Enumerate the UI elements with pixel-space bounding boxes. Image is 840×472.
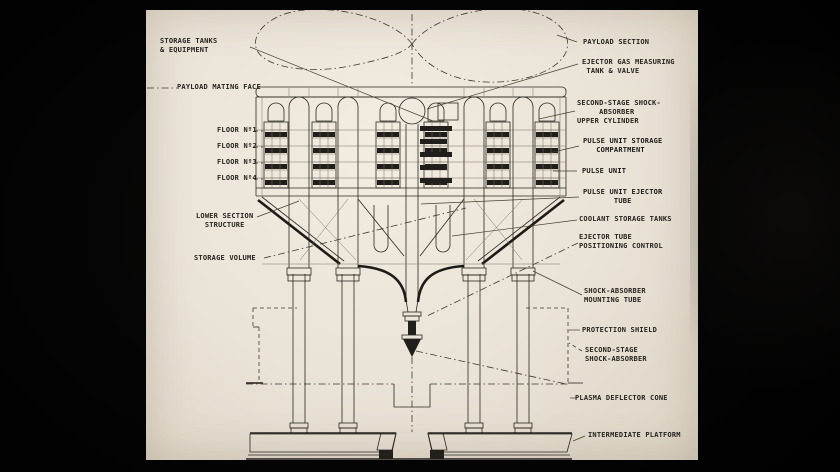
label-floor-4: FLOOR Nº4 [217,174,257,183]
leader-lines [147,35,585,441]
label-storage-tanks-equipment: STORAGE TANKS & EQUIPMENT [160,37,217,55]
label-floor-3: FLOOR Nº3 [217,158,257,167]
photo-viewer-background: STORAGE TANKS & EQUIPMENT PAYLOAD MATING… [0,0,840,472]
label-second-stage-shock-upper: SECOND-STAGE SHOCK- ABSORBER UPPER CYLIN… [577,99,661,126]
label-second-stage-shock-absorber: SECOND-STAGE SHOCK-ABSORBER [585,346,647,364]
label-ejector-tube-positioning: EJECTOR TUBE POSITIONING CONTROL [579,233,663,251]
label-pulse-unit: PULSE UNIT [582,167,626,176]
label-plasma-deflector-cone: PLASMA DEFLECTOR CONE [575,394,668,403]
intermediate-platform [246,433,572,459]
pulse-unit-storage-racks [264,103,559,188]
label-floor-1: FLOOR Nº1 [217,126,257,135]
label-shock-absorber-mounting: SHOCK-ABSORBER MOUNTING TUBE [584,287,646,305]
label-intermediate-platform: INTERMEDIATE PLATFORM [588,431,681,440]
label-pulse-unit-storage: PULSE UNIT STORAGE COMPARTMENT [583,137,662,155]
label-protection-shield: PROTECTION SHIELD [582,326,657,335]
label-lower-section-structure: LOWER SECTION STRUCTURE [196,212,253,230]
payload-mating-plate [256,87,566,97]
label-storage-volume: STORAGE VOLUME [194,254,256,263]
lower-section-truss [258,197,564,302]
label-coolant-storage-tanks: COOLANT STORAGE TANKS [579,215,672,224]
label-payload-section: PAYLOAD SECTION [583,38,649,47]
blueprint-page: STORAGE TANKS & EQUIPMENT PAYLOAD MATING… [146,10,698,460]
upper-cylinders [287,97,535,281]
label-floor-2: FLOOR Nº2 [217,142,257,151]
label-payload-mating-face: PAYLOAD MATING FACE [177,83,261,92]
payload-envelope-outline [255,10,567,86]
label-ejector-gas-measuring: EJECTOR GAS MEASURING TANK & VALVE [582,58,675,76]
label-pulse-unit-ejector-tube: PULSE UNIT EJECTOR TUBE [583,188,662,206]
